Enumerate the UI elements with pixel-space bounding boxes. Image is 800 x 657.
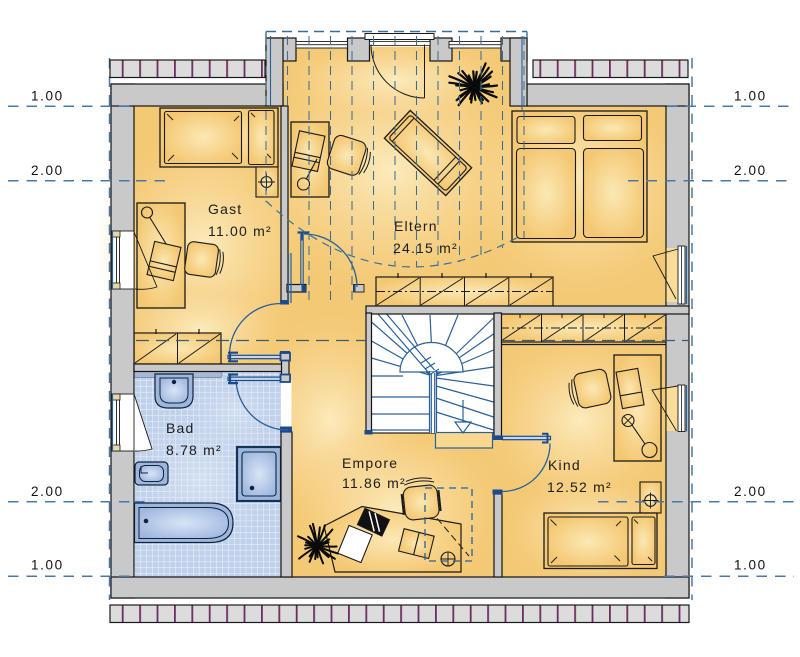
svg-text:2.00: 2.00 bbox=[31, 163, 64, 178]
svg-text:Bad: Bad bbox=[166, 420, 195, 436]
svg-text:11.00 m²: 11.00 m² bbox=[208, 223, 272, 239]
svg-text:1.00: 1.00 bbox=[31, 89, 64, 104]
svg-text:2.00: 2.00 bbox=[734, 484, 767, 499]
svg-text:24.15 m²: 24.15 m² bbox=[393, 240, 458, 256]
svg-text:1.00: 1.00 bbox=[734, 89, 767, 104]
svg-text:1.00: 1.00 bbox=[734, 558, 767, 573]
svg-text:8.78 m²: 8.78 m² bbox=[166, 442, 222, 458]
svg-text:Kind: Kind bbox=[548, 457, 581, 473]
svg-text:Gast: Gast bbox=[208, 201, 242, 217]
svg-text:11.86 m²: 11.86 m² bbox=[342, 475, 406, 491]
svg-text:1.00: 1.00 bbox=[31, 558, 64, 573]
svg-text:Empore: Empore bbox=[342, 455, 398, 471]
svg-text:2.00: 2.00 bbox=[31, 484, 64, 499]
svg-text:Eltern: Eltern bbox=[394, 218, 438, 234]
svg-text:2.00: 2.00 bbox=[734, 163, 767, 178]
svg-text:12.52 m²: 12.52 m² bbox=[547, 479, 612, 495]
